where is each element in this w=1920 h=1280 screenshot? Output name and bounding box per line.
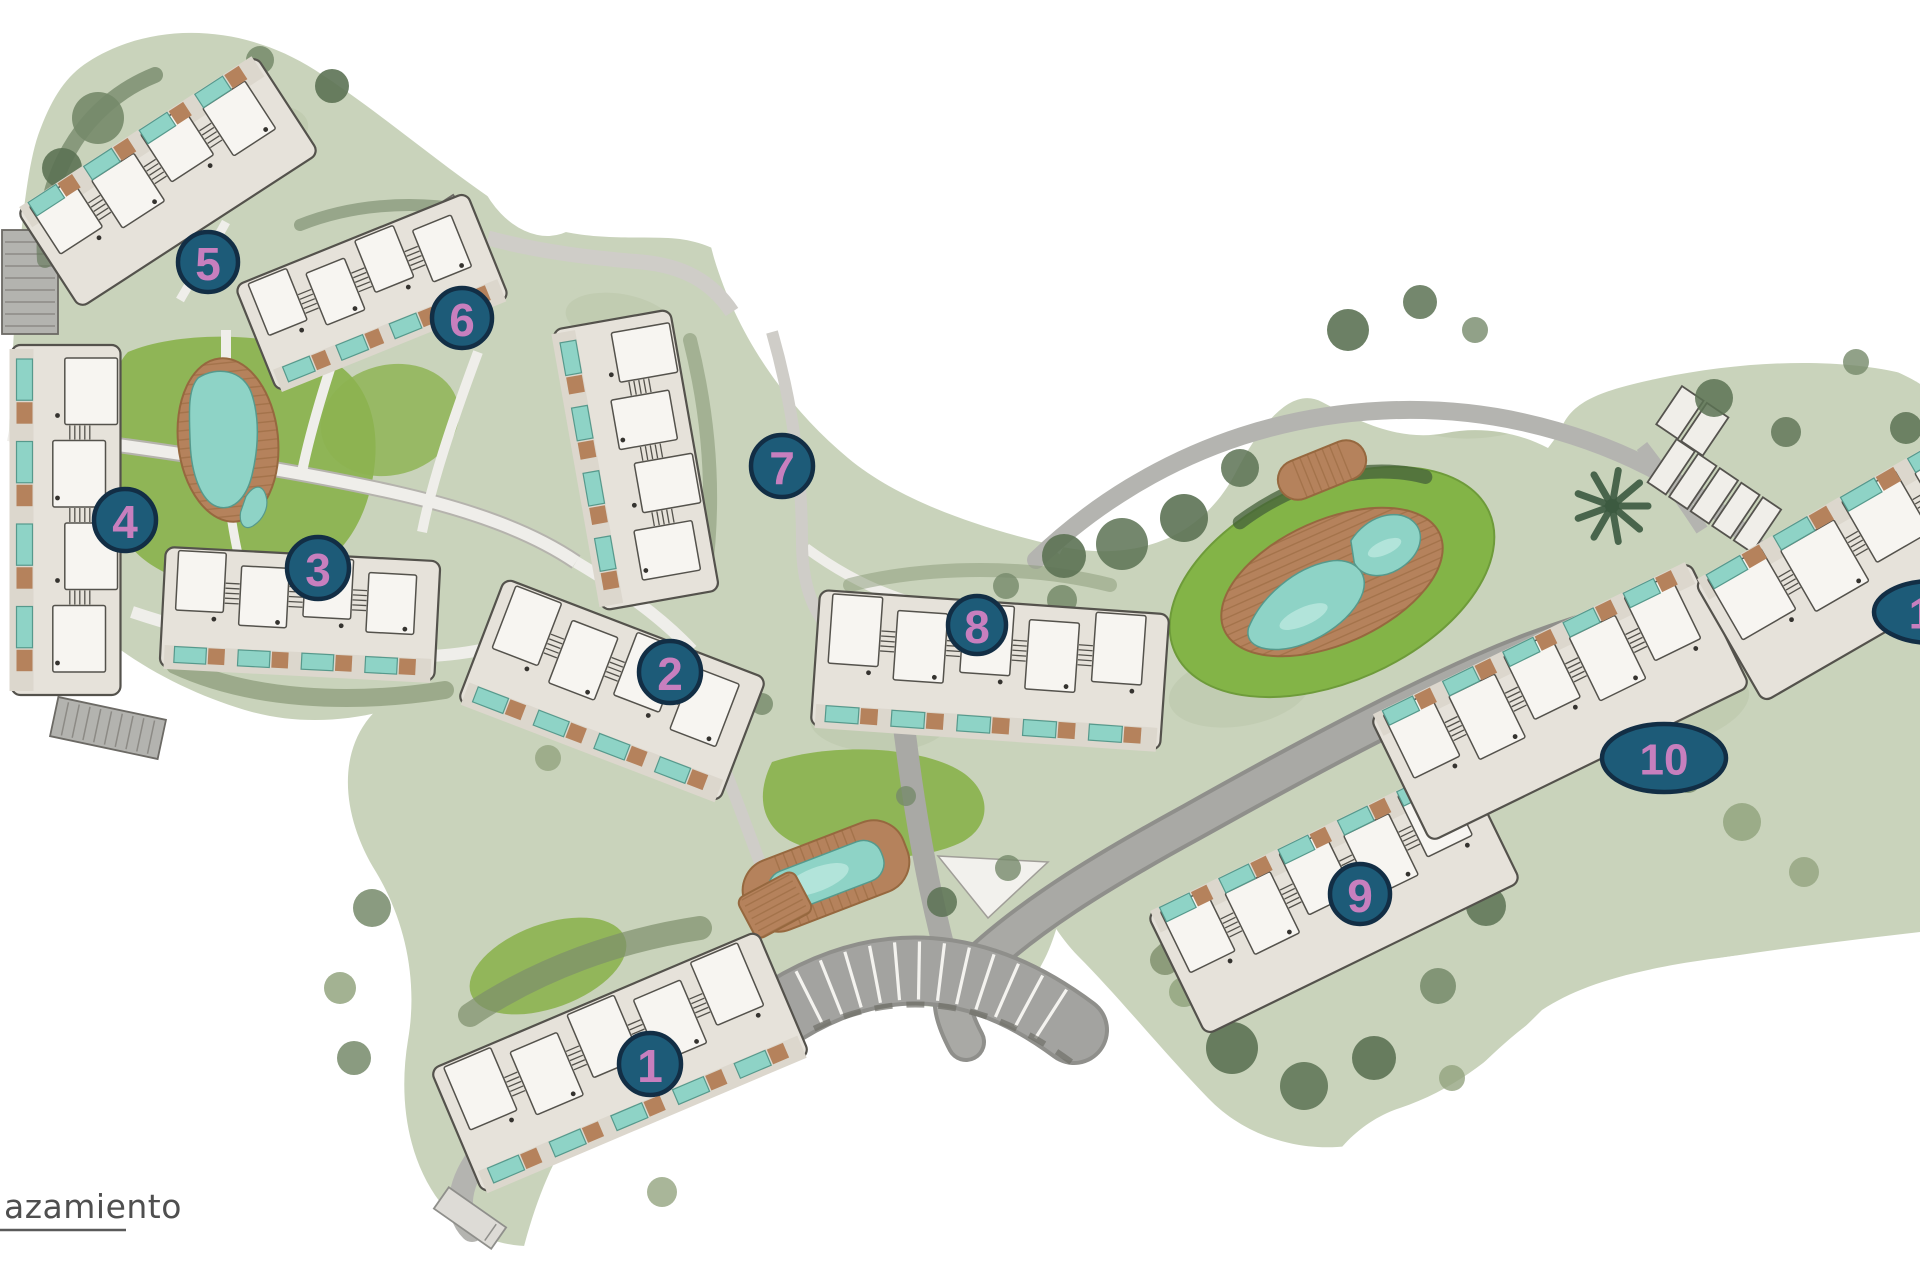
phase-badge-number: 1 (637, 1040, 663, 1092)
phase-badge-1[interactable]: 1 (619, 1033, 681, 1095)
tree (1439, 1065, 1465, 1091)
phase-badge-number: 8 (964, 601, 990, 653)
tree (1280, 1062, 1328, 1110)
phase-badge-5[interactable]: 5 (178, 232, 238, 292)
tree (1352, 1036, 1396, 1080)
phase-badge-number: 6 (449, 294, 475, 346)
tree (1695, 379, 1733, 417)
phase-badge-number: 3 (305, 544, 331, 596)
phase-badge-3[interactable]: 3 (287, 537, 349, 599)
tree (1042, 534, 1086, 578)
tree (72, 92, 124, 144)
tree (647, 1177, 677, 1207)
phase-badge-number: 4 (112, 496, 138, 548)
tree (1462, 317, 1488, 343)
tree (337, 1041, 371, 1075)
phase-badge-number: 5 (195, 238, 221, 290)
tree (1403, 285, 1437, 319)
tree (353, 889, 391, 927)
phase-badge-number: 7 (769, 442, 795, 494)
tree (1789, 857, 1819, 887)
tree (1327, 309, 1369, 351)
phase-badge-4[interactable]: 4 (94, 489, 156, 551)
phase-badge-9[interactable]: 9 (1330, 864, 1390, 924)
phase-badge-8[interactable]: 8 (948, 596, 1006, 654)
phase-badge-number: 10 (1640, 736, 1689, 785)
caption: azamiento (0, 1187, 182, 1230)
tree (1723, 803, 1761, 841)
phase-badge-6[interactable]: 6 (432, 288, 492, 348)
phase-badge-2[interactable]: 2 (639, 641, 701, 703)
phase-badge-7[interactable]: 7 (751, 435, 813, 497)
tree (315, 69, 349, 103)
phase-badge-10[interactable]: 10 (1602, 724, 1726, 792)
site-plan-page: 1234567891011 azamiento (0, 0, 1920, 1280)
tree (535, 745, 561, 771)
tree (1420, 968, 1456, 1004)
phase-badge-number: 11 (1909, 590, 1920, 639)
tree (324, 972, 356, 1004)
tree (1843, 349, 1869, 375)
tree (1221, 449, 1259, 487)
site-caption-text: azamiento (4, 1187, 182, 1226)
tree (1096, 518, 1148, 570)
site-plan-drawing: 1234567891011 azamiento (0, 0, 1920, 1280)
tree (993, 573, 1019, 599)
phase-badge-number: 2 (657, 648, 683, 700)
tree (927, 887, 957, 917)
tree (995, 855, 1021, 881)
tree (1771, 417, 1801, 447)
tree (896, 786, 916, 806)
tree (1160, 494, 1208, 542)
phase-badge-number: 9 (1347, 870, 1373, 922)
